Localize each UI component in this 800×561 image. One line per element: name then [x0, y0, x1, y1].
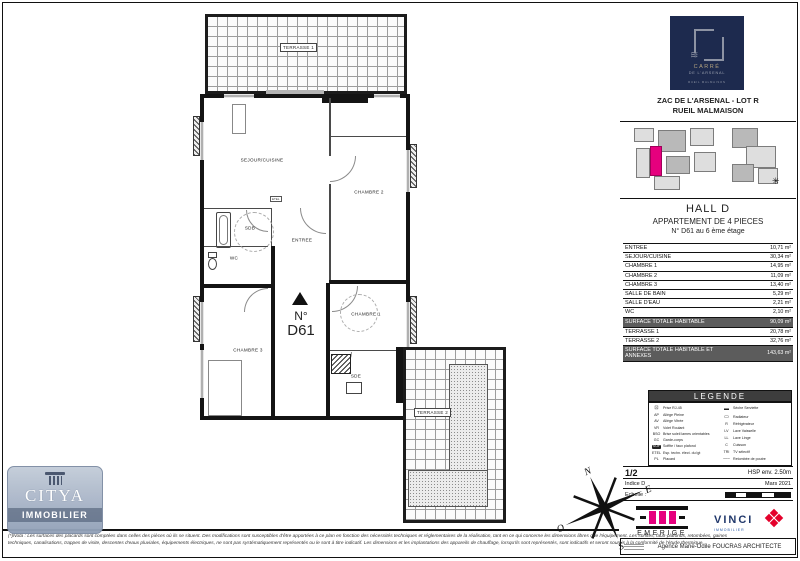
title-block: ≋ CARRÉ DE L'ARSENAL RUEIL MALMAISON ZAC…: [618, 0, 798, 561]
surface-label: ENTREE: [625, 245, 647, 251]
etel-label: ETEL: [270, 196, 282, 202]
legend-sym: ETEL: [650, 452, 663, 456]
legend-label: Lave Vaisselle: [733, 430, 756, 434]
surfaces-table: ENTREE10,71 m² SEJOUR/CUISINE30,34 m² CH…: [623, 243, 793, 362]
surface-value: 5,29 m²: [773, 291, 791, 297]
kitchen-unit: [232, 104, 246, 134]
legend-label: Réfrigérateur: [733, 423, 754, 427]
project-title: ZAC DE L'ARSENAL - LOT R RUEIL MALMAISON: [618, 96, 798, 116]
scale-bar-icon: [725, 492, 791, 498]
legend-sym: LL: [720, 437, 733, 441]
legend-item: GCGarde-corps: [650, 439, 720, 443]
towel-dryer-icon: ▬: [720, 407, 733, 412]
emerige-mark-icon: [632, 511, 692, 524]
site-building: [690, 128, 714, 146]
terrace-1: TERRASSE 1: [205, 14, 407, 94]
site-north-icon: ✳: [772, 176, 780, 187]
legend-label: Prise RJ-45: [663, 407, 682, 411]
site-building: [658, 130, 686, 152]
legend-item: TRITV sélectif: [720, 451, 790, 455]
legend-item: AVAllège Vitrée: [650, 420, 720, 424]
surface-row: WC2,10 m²: [623, 308, 793, 317]
project-line2: RUEIL MALMAISON: [618, 106, 798, 116]
legend-left-column: ⊡Prise RJ-45 APAllège Pleine AVAllège Vi…: [650, 405, 720, 463]
surface-value: 11,09 m²: [770, 273, 791, 279]
indice: Indice D: [625, 481, 645, 487]
arsenal-logo-line3: RUEIL MALMAISON: [670, 80, 744, 84]
legend-item: VRVolet Roulant: [650, 427, 720, 431]
entrance-arrow-icon: [292, 292, 308, 305]
shutter-box: [193, 116, 200, 156]
disclaimer-text: (*)Nota : Les surfaces des placards sont…: [8, 533, 746, 547]
door-arc: [244, 288, 268, 312]
legend-right-column: ▬Sèche Serviette ▭Radiateur RRéfrigérate…: [720, 405, 790, 463]
terrace-2: TERRASSE 2: [403, 347, 506, 523]
legend-sym: LV: [720, 430, 733, 434]
unit-number: N° D61: [287, 310, 315, 338]
citya-watermark: CITYA IMMOBILIER: [7, 466, 103, 534]
partition: [329, 98, 331, 156]
partition: [204, 208, 272, 209]
site-building: [654, 176, 680, 190]
legend-sym: GC: [650, 439, 663, 443]
legend-item: PLPlacard: [650, 458, 720, 462]
window: [224, 94, 254, 98]
shutter-box: [410, 144, 417, 188]
hall-name: HALL D: [618, 203, 798, 215]
legend-label: Volet Roulant: [663, 427, 684, 431]
legend-item: RRéfrigérateur: [720, 423, 790, 427]
legend-sym: PL: [650, 458, 663, 462]
legend-box: ⊡Prise RJ-45 APAllège Pleine AVAllège Vi…: [648, 402, 792, 466]
wall: [329, 280, 406, 284]
surface-total-row: SURFACE TOTALE HABITABLE90,09 m²: [623, 318, 793, 328]
door-arc: [330, 156, 356, 182]
column-icon: [49, 476, 62, 485]
project-line1: ZAC DE L'ARSENAL - LOT R: [618, 96, 798, 106]
legend-label: Garde-corps: [663, 439, 683, 443]
citya-wordmark: CITYA: [25, 486, 85, 506]
planter: [408, 470, 488, 507]
legend-item: CCuisson: [720, 444, 790, 448]
legend-item: ▭Radiateur: [720, 415, 790, 420]
vinci-wordmark: VINCI: [714, 514, 753, 526]
surface-value: 2,10 m²: [773, 309, 791, 315]
apartment-title: HALL D APPARTEMENT DE 4 PIECES N° D61 au…: [618, 203, 798, 235]
surface-row: CHAMBRE 313,40 m²: [623, 281, 793, 290]
surface-value: 30,34 m²: [770, 254, 791, 260]
surface-row: SALLE DE BAIN5,29 m²: [623, 290, 793, 299]
legend-sym: VR: [650, 427, 663, 431]
rj45-icon: ⊡: [650, 406, 663, 411]
date: Mars 2021: [765, 481, 791, 487]
wall: [326, 283, 330, 420]
surface-label: TERRASSE 2: [625, 338, 659, 344]
surface-label: SALLE D'EAU: [625, 300, 660, 306]
legend-sym: C: [720, 444, 733, 448]
window: [374, 94, 400, 98]
partition: [330, 350, 406, 351]
legend-label: Esp. techn. élect. du lgt: [663, 452, 700, 456]
apartment-number: N° D61 au 6 ème étage: [618, 228, 798, 235]
indice-row: Indice D Mars 2021: [623, 479, 793, 489]
legend-item: APAllège Pleine: [650, 414, 720, 418]
soffite-icon: SOF: [652, 445, 661, 449]
vinci-rosette-icon: [766, 510, 782, 526]
vinci-logo: VINCI IMMOBILIER: [714, 510, 784, 532]
toilet-icon: [208, 258, 217, 270]
site-building: [732, 128, 758, 148]
legend-label: Retombée de poutre: [733, 458, 766, 462]
legend-label: Radiateur: [733, 416, 749, 420]
window: [200, 350, 204, 398]
surface-row: ENTREE10,71 m²: [623, 244, 793, 253]
wave-icon: ≋: [690, 50, 697, 61]
surface-grand-total-row: SURFACE TOTALE HABITABLE ET ANNEXES143,6…: [623, 346, 793, 362]
surface-row: SEJOUR/CUISINE30,34 m²: [623, 253, 793, 262]
wall: [271, 246, 275, 420]
surface-value: 32,76 m²: [770, 338, 791, 344]
scale-label: Echelle :: [625, 492, 646, 498]
plan-sheet: TERRASSE 1: [0, 0, 800, 561]
room-label-sde: SDE: [351, 374, 361, 379]
legend-sym: BSO: [650, 433, 663, 437]
surface-label: CHAMBRE 1: [625, 263, 657, 269]
turning-circle: [234, 212, 274, 252]
room-label-chambre2: CHAMBRE 2: [354, 190, 384, 195]
surface-label: TERRASSE 1: [625, 329, 659, 335]
legend-item: ▬Sèche Serviette: [720, 407, 790, 412]
legend-label: TV sélectif: [733, 451, 750, 455]
surface-label: WC: [625, 309, 634, 315]
surface-value: 14,95 m²: [770, 263, 791, 269]
legend-item: LLLave Linge: [720, 437, 790, 441]
surface-row: CHAMBRE 211,09 m²: [623, 272, 793, 281]
wall: [396, 347, 403, 403]
room-label-entree: ENTREE: [292, 238, 312, 243]
site-building: [732, 164, 754, 182]
surface-value: 20,78 m²: [770, 329, 791, 335]
legend-sym: AV: [650, 420, 663, 424]
room-label-sdb: SDB: [245, 226, 255, 231]
surface-value: 143,63 m²: [767, 350, 791, 356]
surface-value: 2,21 m²: [773, 300, 791, 306]
apartment-type: APPARTEMENT DE 4 PIECES: [618, 217, 798, 226]
wall: [204, 284, 272, 288]
surface-label: SURFACE TOTALE HABITABLE ET ANNEXES: [625, 347, 725, 360]
legend-label: Soffite / faux plafond: [663, 445, 696, 449]
bathtub: [216, 212, 231, 248]
surface-value: 90,09 m²: [770, 319, 791, 325]
surface-label: SURFACE TOTALE HABITABLE: [625, 319, 705, 325]
legend-sym: AP: [650, 414, 663, 418]
surface-label: SALLE DE BAIN: [625, 291, 666, 297]
legend-label: Placard: [663, 458, 675, 462]
arsenal-logo-line1: CARRÉ: [670, 64, 744, 70]
surface-value: 13,40 m²: [770, 282, 791, 288]
bed-outline: [208, 360, 242, 416]
room-label-chambre3: CHAMBRE 3: [233, 348, 263, 353]
legend-item: ⊡Prise RJ-45: [650, 406, 720, 411]
site-building: [636, 148, 650, 178]
window: [200, 302, 204, 344]
surface-value: 10,71 m²: [770, 245, 791, 251]
column-icon: [45, 472, 65, 475]
surface-row: SALLE D'EAU2,21 m²: [623, 299, 793, 308]
compass-n: N: [582, 465, 595, 479]
legend-label: Allège Pleine: [663, 414, 684, 418]
logo-bracket-icon: [704, 37, 724, 61]
site-building: [694, 152, 716, 172]
legend-label: Allège Vitrée: [663, 420, 683, 424]
radiator-icon: ▭: [720, 415, 733, 420]
door-arc: [300, 208, 326, 234]
shower-icon: [331, 354, 351, 374]
window: [200, 122, 204, 160]
vinci-subtitle: IMMOBILIER: [714, 528, 784, 532]
room-label-chambre1: CHAMBRE 1: [351, 312, 381, 317]
partition: [329, 136, 406, 137]
legend-title: LEGENDE: [648, 390, 792, 402]
arsenal-logo: ≋ CARRÉ DE L'ARSENAL RUEIL MALMAISON: [670, 16, 744, 90]
legend-label: Cuisson: [733, 444, 746, 448]
legend-item: SOFSoffite / faux plafond: [650, 445, 720, 449]
legend-item: BSOBrise soleil lames orientables: [650, 433, 720, 437]
emerige-bar-icon: [636, 506, 688, 510]
legend-label: Lave Linge: [733, 437, 751, 441]
legend-item: ETELEsp. techn. élect. du lgt: [650, 452, 720, 456]
arsenal-logo-line2: DE L'ARSENAL: [670, 71, 744, 75]
site-building: [634, 128, 654, 142]
partition: [329, 184, 331, 280]
developer-logos: EMERIGE VINCI IMMOBILIER: [618, 506, 798, 536]
unit-number-value: D61: [287, 323, 315, 339]
legend-sym: R: [720, 423, 733, 427]
surface-label: SEJOUR/CUISINE: [625, 254, 671, 260]
shutter-box: [193, 296, 200, 342]
ceiling-height: HSP env. 2.50m: [748, 470, 791, 476]
apartment-outline: SEJOUR/CUISINE CHAMBRE 2 SDB WC ENTREE C…: [200, 94, 410, 420]
shutter-box: [410, 296, 417, 344]
surface-row: TERRASSE 120,78 m²: [623, 328, 793, 337]
terrace-2-label: TERRASSE 2: [414, 408, 451, 417]
emerige-bar-icon: [636, 526, 688, 530]
legend-label: Brise soleil lames orientables: [663, 433, 710, 437]
legend-label: Sèche Serviette: [733, 407, 758, 411]
terrace-1-label: TERRASSE 1: [280, 43, 317, 52]
site-unit-highlight: [650, 146, 662, 176]
surface-row: CHAMBRE 114,95 m²: [623, 262, 793, 271]
scale-row: Echelle :: [623, 489, 793, 501]
legend-item: ╌╌╌Retombée de poutre: [720, 458, 790, 462]
page-hsp-row: 1/2 HSP env. 2.50m: [623, 466, 793, 479]
page-number: 1/2: [625, 468, 638, 478]
beam-dash-icon: ╌╌╌: [720, 458, 733, 462]
washbasin-icon: [346, 382, 362, 394]
site-plan: ✳: [620, 124, 796, 197]
citya-subtitle: IMMOBILIER: [8, 508, 102, 522]
legend-item: LVLave Vaisselle: [720, 430, 790, 434]
room-label-wc: WC: [230, 256, 238, 261]
room-label-sejour: SEJOUR/CUISINE: [241, 158, 284, 163]
site-building: [666, 156, 690, 174]
surface-row: TERRASSE 232,76 m²: [623, 337, 793, 346]
unit-number-prefix: N°: [287, 310, 315, 323]
divider: [620, 121, 796, 122]
legend-sym: TRI: [720, 451, 733, 455]
divider: [620, 198, 796, 199]
surface-label: CHAMBRE 2: [625, 273, 657, 279]
surface-label: CHAMBRE 3: [625, 282, 657, 288]
